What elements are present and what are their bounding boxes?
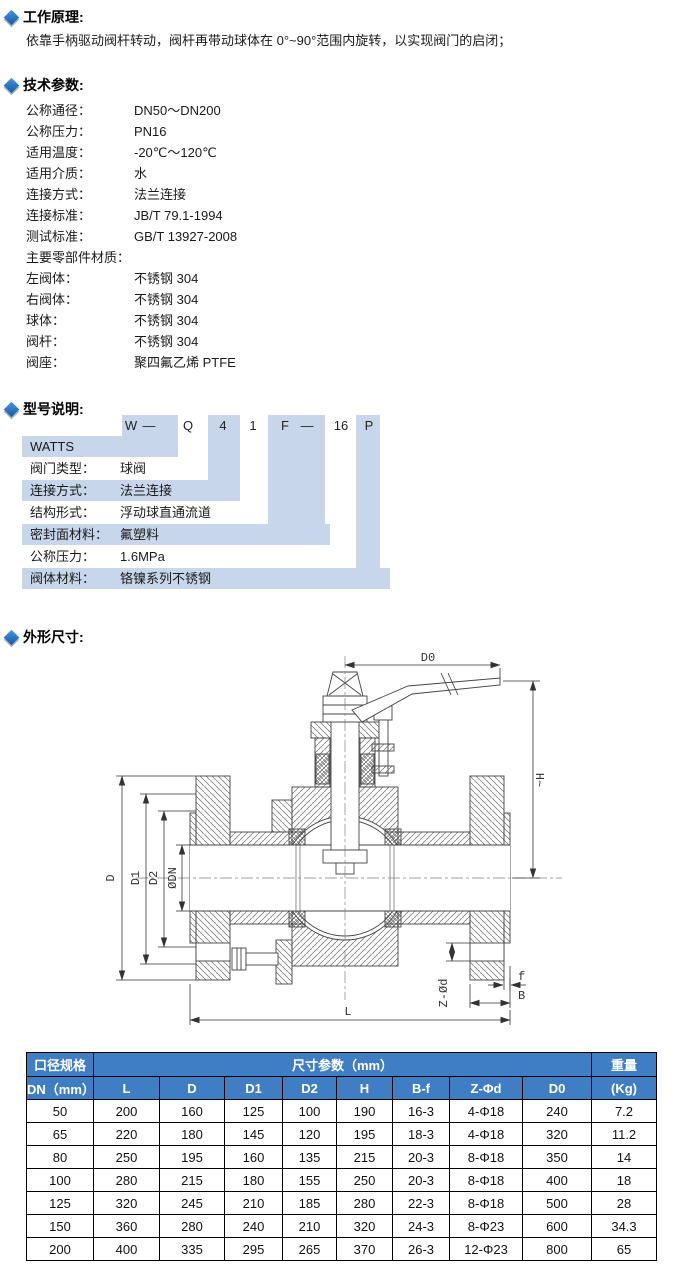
table-cell: 20-3 bbox=[393, 1146, 450, 1169]
table-cell: 8-Φ18 bbox=[450, 1192, 523, 1215]
table-cell: 320 bbox=[523, 1123, 592, 1146]
table-header-cell: D bbox=[160, 1077, 225, 1100]
table-cell: 400 bbox=[523, 1169, 592, 1192]
table-cell: 26-3 bbox=[393, 1238, 450, 1261]
section-tech-header: 技术参数: bbox=[4, 76, 84, 94]
model-row: 连接方式： 法兰连接 bbox=[0, 480, 420, 501]
table-cell: 195 bbox=[160, 1146, 225, 1169]
param-row: 测试标准：GB/T 13927-2008 bbox=[26, 226, 237, 247]
table-cell: 22-3 bbox=[393, 1192, 450, 1215]
model-code-char: Q bbox=[183, 417, 193, 434]
table-cell: 150 bbox=[27, 1215, 94, 1238]
model-code-char: 4 bbox=[219, 417, 226, 434]
dims-table: 口径规格尺寸参数（mm）重量DN（mm）LDD1D2HB-fZ-ΦdD0(Kg)… bbox=[26, 1052, 657, 1261]
table-cell: 24-3 bbox=[393, 1215, 450, 1238]
model-row-value: 铬镍系列不锈钢 bbox=[120, 568, 211, 589]
param-value: -20℃～120℃ bbox=[134, 142, 217, 163]
param-value: 不锈钢 304 bbox=[134, 310, 198, 331]
table-header-cell: 尺寸参数（mm） bbox=[94, 1053, 592, 1077]
table-header-cell: D2 bbox=[283, 1077, 337, 1100]
param-label: 测试标准： bbox=[26, 226, 134, 247]
param-row: 右阀体：不锈钢 304 bbox=[26, 289, 237, 310]
table-header-cell: D0 bbox=[523, 1077, 592, 1100]
table-row: 20040033529526537026-312-Φ2380065 bbox=[27, 1238, 657, 1261]
param-label: 适用介质： bbox=[26, 163, 134, 184]
model-row: 结构形式： 浮动球直通流道 bbox=[0, 502, 420, 523]
model-row-value: 氟塑料 bbox=[120, 524, 159, 545]
model-code-char: — bbox=[143, 417, 156, 434]
model-code-char: P bbox=[365, 417, 374, 434]
param-value: GB/T 13927-2008 bbox=[134, 226, 237, 247]
param-label: 公称压力： bbox=[26, 121, 134, 142]
table-cell: 245 bbox=[160, 1192, 225, 1215]
table-cell: 250 bbox=[337, 1169, 393, 1192]
table-header-cell: 口径规格 bbox=[27, 1053, 94, 1077]
table-header-cell: DN（mm） bbox=[27, 1077, 94, 1100]
model-row-label: 阀体材料： bbox=[30, 568, 95, 589]
model-code-diagram: W — Q 4 1 F — 16 P WATTS 阀门类型： 球阀 连接方式： … bbox=[0, 415, 681, 595]
table-cell: 370 bbox=[337, 1238, 393, 1261]
model-row-label: WATTS bbox=[30, 436, 74, 457]
table-cell: 400 bbox=[94, 1238, 160, 1261]
table-cell: 280 bbox=[94, 1169, 160, 1192]
table-cell: 160 bbox=[225, 1146, 283, 1169]
model-row: 阀体材料： 铬镍系列不锈钢 bbox=[0, 568, 420, 589]
param-value: 不锈钢 304 bbox=[134, 268, 198, 289]
table-cell: 20-3 bbox=[393, 1169, 450, 1192]
table-cell: 360 bbox=[94, 1215, 160, 1238]
principle-body-text: 依靠手柄驱动阀杆转动，阀杆再带动球体在 0°~90°范围内旋转，以实现阀门的启闭… bbox=[26, 30, 511, 49]
section-dims-header: 外形尺寸: bbox=[4, 628, 84, 646]
param-row: 适用介质：水 bbox=[26, 163, 237, 184]
model-row-value: 球阀 bbox=[120, 458, 146, 479]
param-label: 连接方式： bbox=[26, 184, 134, 205]
dim-label-d0: D0 bbox=[421, 651, 435, 665]
tech-params-list: 公称通径：DN50～DN200公称压力：PN16适用温度：-20℃～120℃适用… bbox=[26, 100, 237, 373]
table-row: 10028021518015525020-38-Φ1840018 bbox=[27, 1169, 657, 1192]
table-cell: 295 bbox=[225, 1238, 283, 1261]
table-cell: 16-3 bbox=[393, 1100, 450, 1123]
table-cell: 500 bbox=[523, 1192, 592, 1215]
model-code-char: — bbox=[301, 417, 314, 434]
dim-label-zd: Z-Ød bbox=[437, 979, 451, 1008]
dim-label-b: B bbox=[518, 989, 525, 1003]
param-row: 阀座：聚四氟乙烯 PTFE bbox=[26, 352, 237, 373]
table-header-cell: (Kg) bbox=[592, 1077, 657, 1100]
table-row: 6522018014512019518-34-Φ1832011.2 bbox=[27, 1123, 657, 1146]
table-row: 8025019516013521520-38-Φ1835014 bbox=[27, 1146, 657, 1169]
param-label: 公称通径： bbox=[26, 100, 134, 121]
model-row-label: 结构形式： bbox=[30, 502, 95, 523]
table-cell: 18-3 bbox=[393, 1123, 450, 1146]
table-cell: 220 bbox=[94, 1123, 160, 1146]
table-header-cell: Z-Φd bbox=[450, 1077, 523, 1100]
model-row-label: 连接方式： bbox=[30, 480, 95, 501]
model-row-label: 公称压力： bbox=[30, 546, 95, 567]
model-row-value: 浮动球直通流道 bbox=[120, 502, 211, 523]
table-cell: 11.2 bbox=[592, 1123, 657, 1146]
param-label: 左阀体： bbox=[26, 268, 134, 289]
table-cell: 100 bbox=[27, 1169, 94, 1192]
table-cell: 210 bbox=[283, 1215, 337, 1238]
table-header-cell: B-f bbox=[393, 1077, 450, 1100]
section-diamond-icon bbox=[4, 9, 20, 25]
model-row: 公称压力： 1.6MPa bbox=[0, 546, 420, 567]
table-cell: 125 bbox=[27, 1192, 94, 1215]
table-cell: 28 bbox=[592, 1192, 657, 1215]
table-cell: 50 bbox=[27, 1100, 94, 1123]
table-cell: 320 bbox=[337, 1215, 393, 1238]
table-header-cell: L bbox=[94, 1077, 160, 1100]
table-cell: 180 bbox=[160, 1123, 225, 1146]
valve-body bbox=[190, 672, 510, 984]
table-header-cell: 重量 bbox=[592, 1053, 657, 1077]
model-row: 阀门类型： 球阀 bbox=[0, 458, 420, 479]
table-cell: 240 bbox=[523, 1100, 592, 1123]
table-cell: 100 bbox=[283, 1100, 337, 1123]
param-value: PN16 bbox=[134, 121, 167, 142]
dim-label-dn: ØDN bbox=[166, 867, 180, 889]
model-row: 密封面材料： 氟塑料 bbox=[0, 524, 420, 545]
param-label: 连接标准： bbox=[26, 205, 134, 226]
table-cell: 120 bbox=[283, 1123, 337, 1146]
table-cell: 160 bbox=[160, 1100, 225, 1123]
section-principle-header: 工作原理: bbox=[4, 8, 84, 26]
table-cell: 34.3 bbox=[592, 1215, 657, 1238]
table-row: 12532024521018528022-38-Φ1850028 bbox=[27, 1192, 657, 1215]
table-cell: 80 bbox=[27, 1146, 94, 1169]
section-title: 外形尺寸: bbox=[23, 627, 84, 647]
dim-label-h: ~H bbox=[534, 773, 548, 787]
table-cell: 190 bbox=[337, 1100, 393, 1123]
table-cell: 8-Φ18 bbox=[450, 1169, 523, 1192]
param-value: DN50～DN200 bbox=[134, 100, 221, 121]
table-cell: 14 bbox=[592, 1146, 657, 1169]
section-title: 技术参数: bbox=[23, 75, 84, 95]
table-cell: 215 bbox=[160, 1169, 225, 1192]
section-diamond-icon bbox=[4, 77, 20, 93]
table-cell: 12-Φ23 bbox=[450, 1238, 523, 1261]
table-cell: 600 bbox=[523, 1215, 592, 1238]
valve-datasheet-page: 工作原理: 依靠手柄驱动阀杆转动，阀杆再带动球体在 0°~90°范围内旋转，以实… bbox=[0, 0, 681, 1277]
valve-handle bbox=[352, 678, 500, 722]
param-label: 右阀体： bbox=[26, 289, 134, 310]
model-row-value: 1.6MPa bbox=[120, 546, 165, 567]
model-code-char: 1 bbox=[249, 417, 256, 434]
dim-label-f: f bbox=[518, 970, 525, 984]
table-cell: 210 bbox=[225, 1192, 283, 1215]
section-title: 工作原理: bbox=[23, 7, 84, 27]
dim-label-d2: D2 bbox=[147, 871, 161, 885]
table-cell: 135 bbox=[283, 1146, 337, 1169]
param-label: 球体： bbox=[26, 310, 134, 331]
model-code-char: F bbox=[281, 417, 289, 434]
table-cell: 125 bbox=[225, 1100, 283, 1123]
dims-table-body: 5020016012510019016-34-Φ182407.265220180… bbox=[27, 1100, 657, 1261]
model-code-char: W bbox=[125, 417, 137, 434]
table-cell: 4-Φ18 bbox=[450, 1123, 523, 1146]
model-code-char: 16 bbox=[334, 417, 348, 434]
param-label: 阀杆： bbox=[26, 331, 134, 352]
table-cell: 280 bbox=[160, 1215, 225, 1238]
model-row: WATTS bbox=[0, 436, 420, 457]
table-cell: 7.2 bbox=[592, 1100, 657, 1123]
param-value: 不锈钢 304 bbox=[134, 289, 198, 310]
table-cell: 800 bbox=[523, 1238, 592, 1261]
param-row: 适用温度：-20℃～120℃ bbox=[26, 142, 237, 163]
table-cell: 185 bbox=[283, 1192, 337, 1215]
param-label: 适用温度： bbox=[26, 142, 134, 163]
table-cell: 65 bbox=[592, 1238, 657, 1261]
table-header-cell: H bbox=[337, 1077, 393, 1100]
dims-table-header: 口径规格尺寸参数（mm）重量DN（mm）LDD1D2HB-fZ-ΦdD0(Kg) bbox=[27, 1053, 657, 1100]
param-label: 主要零部件材质： bbox=[26, 247, 134, 268]
dim-label-d: D bbox=[104, 874, 118, 881]
table-cell: 215 bbox=[337, 1146, 393, 1169]
param-row: 公称通径：DN50～DN200 bbox=[26, 100, 237, 121]
dim-label-d1: D1 bbox=[129, 871, 143, 885]
table-cell: 8-Φ23 bbox=[450, 1215, 523, 1238]
table-cell: 8-Φ18 bbox=[450, 1146, 523, 1169]
table-header-cell: D1 bbox=[225, 1077, 283, 1100]
section-diamond-icon bbox=[4, 629, 20, 645]
model-row-value: 法兰连接 bbox=[120, 480, 172, 501]
param-row: 公称压力：PN16 bbox=[26, 121, 237, 142]
param-row: 阀杆：不锈钢 304 bbox=[26, 331, 237, 352]
table-cell: 180 bbox=[225, 1169, 283, 1192]
param-row: 球体：不锈钢 304 bbox=[26, 310, 237, 331]
model-row-label: 密封面材料： bbox=[30, 524, 108, 545]
table-cell: 240 bbox=[225, 1215, 283, 1238]
table-cell: 200 bbox=[27, 1238, 94, 1261]
model-row-label: 阀门类型： bbox=[30, 458, 95, 479]
param-value: 不锈钢 304 bbox=[134, 331, 198, 352]
table-cell: 280 bbox=[337, 1192, 393, 1215]
dim-label-l: L bbox=[344, 1005, 351, 1019]
param-row: 左阀体：不锈钢 304 bbox=[26, 268, 237, 289]
table-cell: 4-Φ18 bbox=[450, 1100, 523, 1123]
param-label: 阀座： bbox=[26, 352, 134, 373]
table-cell: 250 bbox=[94, 1146, 160, 1169]
param-row: 连接方式：法兰连接 bbox=[26, 184, 237, 205]
table-cell: 65 bbox=[27, 1123, 94, 1146]
param-row: 连接标准：JB/T 79.1-1994 bbox=[26, 205, 237, 226]
param-value: 水 bbox=[134, 163, 147, 184]
table-row: 5020016012510019016-34-Φ182407.2 bbox=[27, 1100, 657, 1123]
param-value: 聚四氟乙烯 PTFE bbox=[134, 352, 236, 373]
table-cell: 350 bbox=[523, 1146, 592, 1169]
param-row: 主要零部件材质： bbox=[26, 247, 237, 268]
table-cell: 200 bbox=[94, 1100, 160, 1123]
table-cell: 155 bbox=[283, 1169, 337, 1192]
param-value: JB/T 79.1-1994 bbox=[134, 205, 223, 226]
table-cell: 195 bbox=[337, 1123, 393, 1146]
table-cell: 335 bbox=[160, 1238, 225, 1261]
valve-technical-drawing: D0 ~H D D1 D2 ØDN Z-Ød f B L bbox=[0, 648, 681, 1048]
table-cell: 265 bbox=[283, 1238, 337, 1261]
table-cell: 18 bbox=[592, 1169, 657, 1192]
table-row: 15036028024021032024-38-Φ2360034.3 bbox=[27, 1215, 657, 1238]
table-cell: 320 bbox=[94, 1192, 160, 1215]
table-cell: 145 bbox=[225, 1123, 283, 1146]
param-value: 法兰连接 bbox=[134, 184, 186, 205]
